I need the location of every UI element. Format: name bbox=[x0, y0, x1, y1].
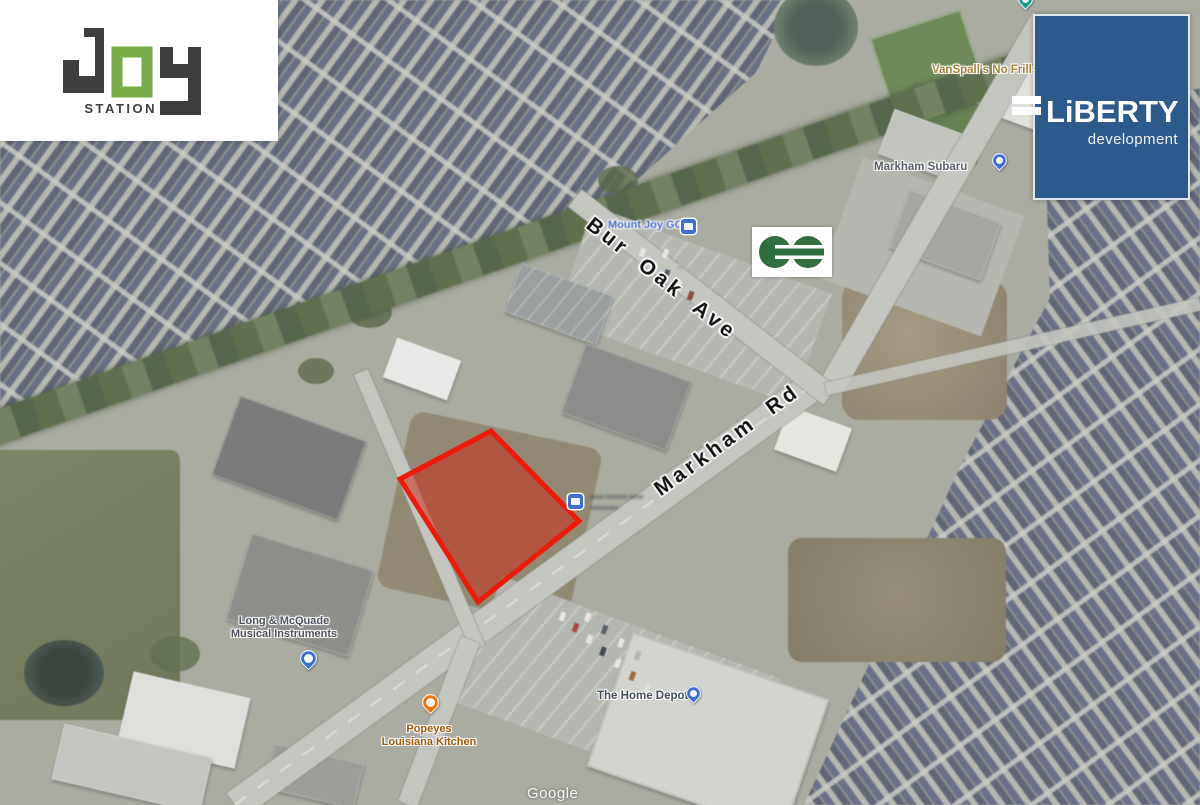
poi-label-line: Louisiana Kitchen bbox=[380, 736, 478, 749]
liberty-equals-mark bbox=[1012, 96, 1041, 104]
poi-label-markham-subaru: Markham Subaru bbox=[874, 161, 967, 173]
google-watermark: Google bbox=[527, 785, 578, 802]
poi-label-popeyes: Popeyes Louisiana Kitchen bbox=[380, 723, 478, 749]
poi-label-no-frills: VanSpall's No Frills bbox=[932, 64, 1038, 76]
poi-label-line: ▬▬▬▬ bbox=[590, 503, 643, 514]
poi-label-line: Popeyes bbox=[380, 723, 478, 736]
poi-label-long-mcquade: Long & McQuade Musical Instruments bbox=[226, 615, 342, 641]
poi-label-mount-joy-go: Mount Joy GO bbox=[608, 219, 683, 231]
liberty-development-logo: LiBERTY development bbox=[1033, 14, 1190, 200]
poi-label-line: Musical Instruments bbox=[226, 628, 342, 641]
joy-station-subtext: STATION bbox=[84, 101, 157, 116]
poi-label-line: ▬▬ ▬▬▬ ▬▬ bbox=[590, 492, 643, 503]
go-transit-logo: GO Transit bbox=[752, 227, 832, 277]
liberty-logo-name: LiBERTY bbox=[1046, 94, 1179, 130]
poi-square-icon bbox=[568, 494, 583, 509]
site-polygon bbox=[400, 431, 579, 602]
joy-station-wordmark: STATION bbox=[0, 0, 278, 141]
transit-station-icon bbox=[681, 219, 696, 234]
aerial-site-map: Bur Oak Ave Markham Rd Mount Joy GO VanS… bbox=[0, 0, 1200, 805]
poi-label-line: Long & McQuade bbox=[226, 615, 342, 628]
poi-label-illegible: ▬▬ ▬▬▬ ▬▬ ▬▬▬▬ bbox=[590, 492, 643, 513]
liberty-logo-subtitle: development bbox=[1088, 131, 1178, 148]
joy-station-logo: JOY STATION bbox=[0, 0, 278, 141]
go-transit-logo-mark bbox=[758, 230, 826, 274]
poi-label-home-depot: The Home Depot bbox=[597, 690, 688, 702]
liberty-equals-mark bbox=[1012, 107, 1041, 115]
